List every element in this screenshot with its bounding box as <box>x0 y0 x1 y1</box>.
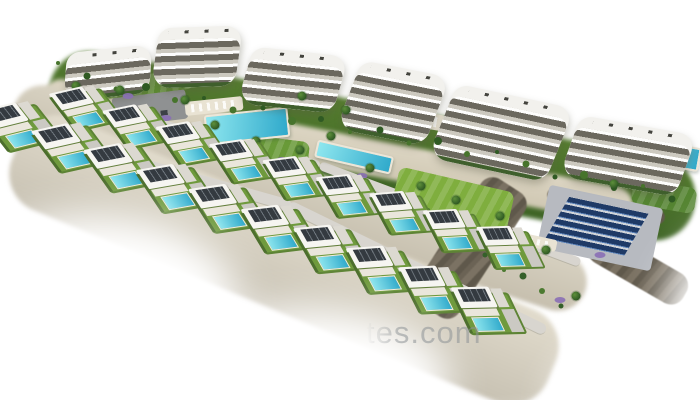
palm-tree-icon <box>342 106 351 115</box>
shrub <box>464 151 470 157</box>
shrub <box>580 171 588 179</box>
palm-tree-icon <box>542 246 551 255</box>
palm-tree-icon <box>572 292 581 301</box>
shrub <box>641 184 645 188</box>
shrub <box>520 273 527 280</box>
shrub <box>522 161 529 168</box>
palm-tree-icon <box>610 180 619 189</box>
palm-tree-icon <box>366 164 375 173</box>
palm-tree-icon <box>296 146 305 155</box>
rooftop-units-icon <box>263 51 336 62</box>
flowering-shrub <box>555 297 566 303</box>
villa-solar-panels <box>405 268 438 282</box>
shrub <box>376 126 383 133</box>
villa-solar-panels <box>300 227 334 242</box>
villa-solar-panels <box>376 193 407 206</box>
shrub <box>202 96 206 100</box>
shrub <box>56 61 60 65</box>
apartment-block <box>151 25 243 88</box>
flowering-shrub <box>123 93 134 99</box>
villa-terrace <box>434 228 468 236</box>
shrub <box>434 137 442 145</box>
villa-terrace <box>487 246 521 254</box>
shrub <box>559 304 564 309</box>
shrub <box>142 83 150 91</box>
villa-solar-panels <box>458 288 491 301</box>
villa-terrace <box>463 308 500 316</box>
palm-tree-icon <box>181 96 190 105</box>
palm-tree-icon <box>452 196 461 205</box>
apartment-block <box>237 47 349 114</box>
balcony-floors <box>151 37 241 85</box>
flowering-shrub <box>595 252 606 258</box>
aerial-render-canvas: tes.com <box>0 0 700 400</box>
shrub <box>318 116 324 122</box>
watermark-text: tes.com <box>366 317 482 348</box>
shrub <box>669 196 676 203</box>
palm-tree-icon <box>496 212 505 221</box>
rooftop-units-icon <box>168 29 232 34</box>
solar-panels <box>545 197 649 256</box>
shrub <box>553 175 558 180</box>
shrub <box>84 72 91 79</box>
shrub <box>288 117 296 125</box>
shrub <box>260 106 265 111</box>
shrub <box>539 288 545 294</box>
rooftop-units-icon <box>77 48 142 58</box>
villa-solar-panels <box>482 228 512 240</box>
shrub <box>172 97 178 103</box>
shrub <box>348 130 352 134</box>
shrub <box>406 140 411 145</box>
palm-tree-icon <box>211 121 220 130</box>
palm-tree-icon <box>298 92 307 101</box>
development-scene <box>0 0 700 400</box>
palm-tree-icon <box>327 132 336 141</box>
shrub <box>230 107 237 114</box>
shrub <box>495 150 499 154</box>
villa-solar-panels <box>429 210 459 222</box>
